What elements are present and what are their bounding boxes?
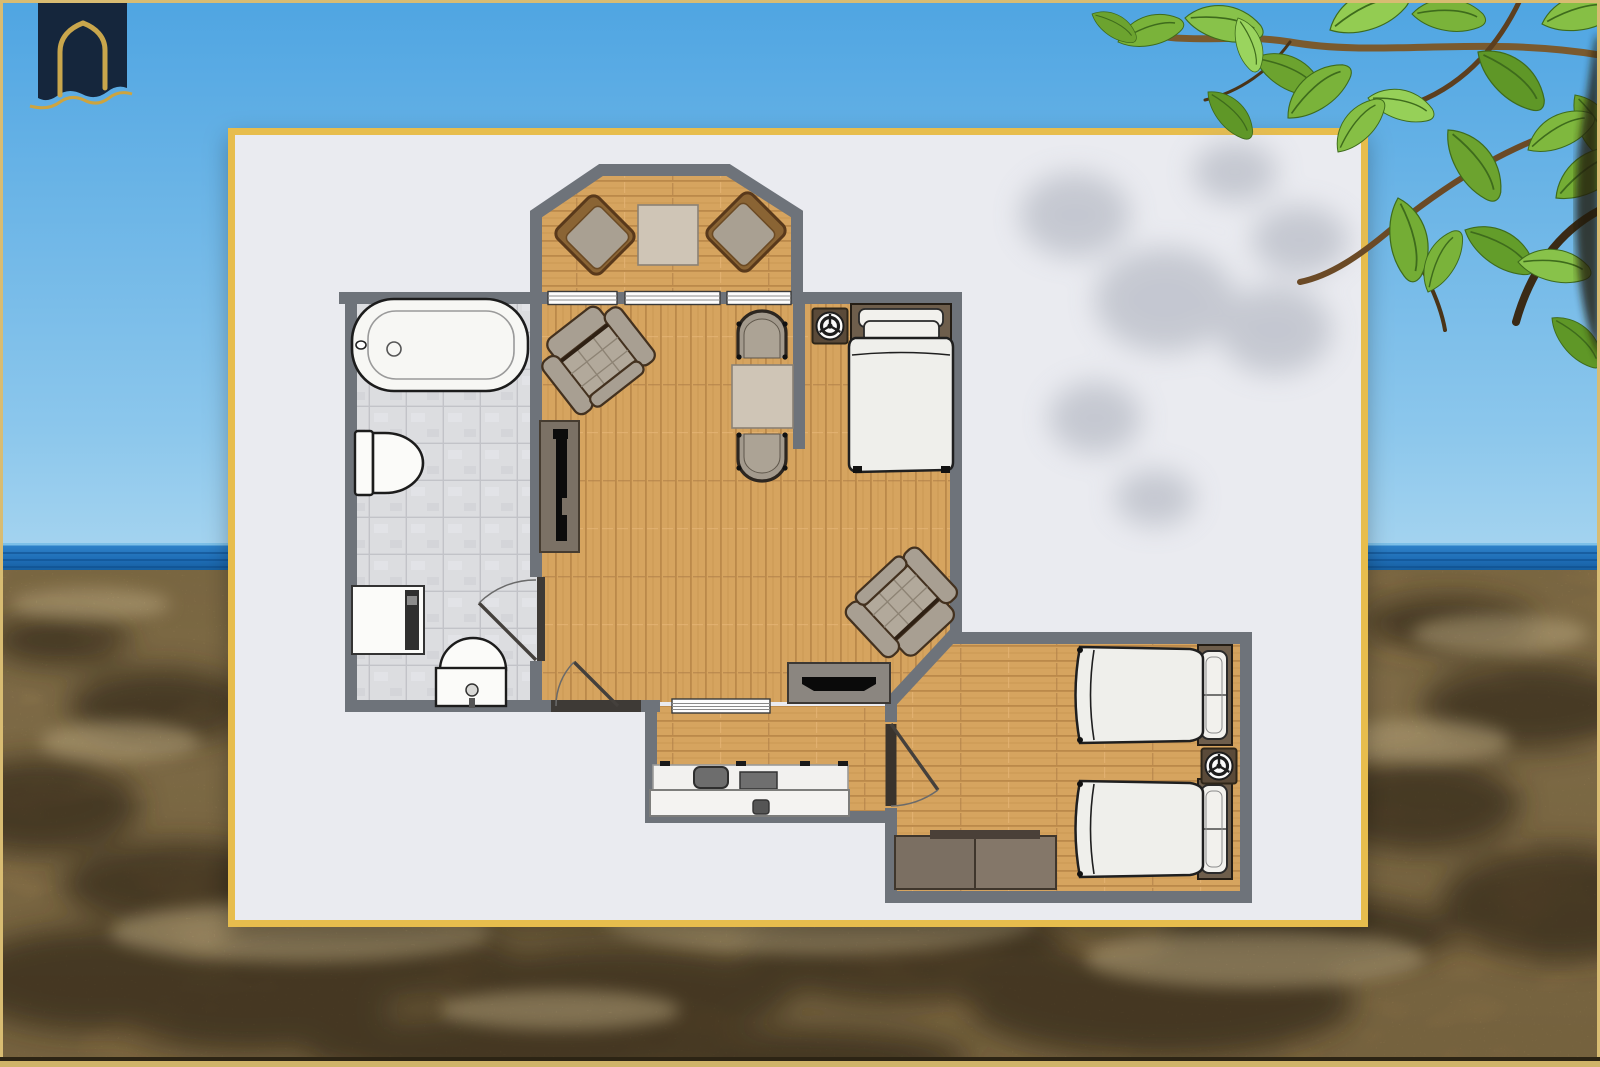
side-table-icon xyxy=(638,205,698,265)
kitchen xyxy=(650,761,849,816)
double-bed-icon xyxy=(849,304,953,473)
window-icon xyxy=(548,292,617,305)
washer-icon xyxy=(352,586,424,654)
tub-chair-icon xyxy=(736,432,787,481)
twin-bed-icon xyxy=(1076,779,1233,879)
tub-chair-icon xyxy=(736,311,787,360)
ceiling-fan-icon xyxy=(1202,749,1237,784)
island-counter-icon xyxy=(650,790,849,816)
window-icon xyxy=(727,292,791,305)
twin-bed-icon xyxy=(1076,645,1233,745)
logo-banner xyxy=(38,0,127,100)
tv-stand-icon xyxy=(788,663,890,703)
dining-table-icon xyxy=(732,365,793,428)
window-icon xyxy=(625,292,720,305)
sink-icon xyxy=(694,767,728,788)
media-unit-icon xyxy=(540,421,579,552)
cooktop-icon xyxy=(740,772,777,789)
bathtub-icon xyxy=(352,299,528,391)
pass-through-window-icon xyxy=(672,699,770,713)
dresser-icon xyxy=(895,830,1056,889)
kitchen-counter-icon xyxy=(653,761,848,790)
beach-floorplan-poster xyxy=(0,0,1600,1067)
ceiling-fan-icon xyxy=(813,309,848,344)
